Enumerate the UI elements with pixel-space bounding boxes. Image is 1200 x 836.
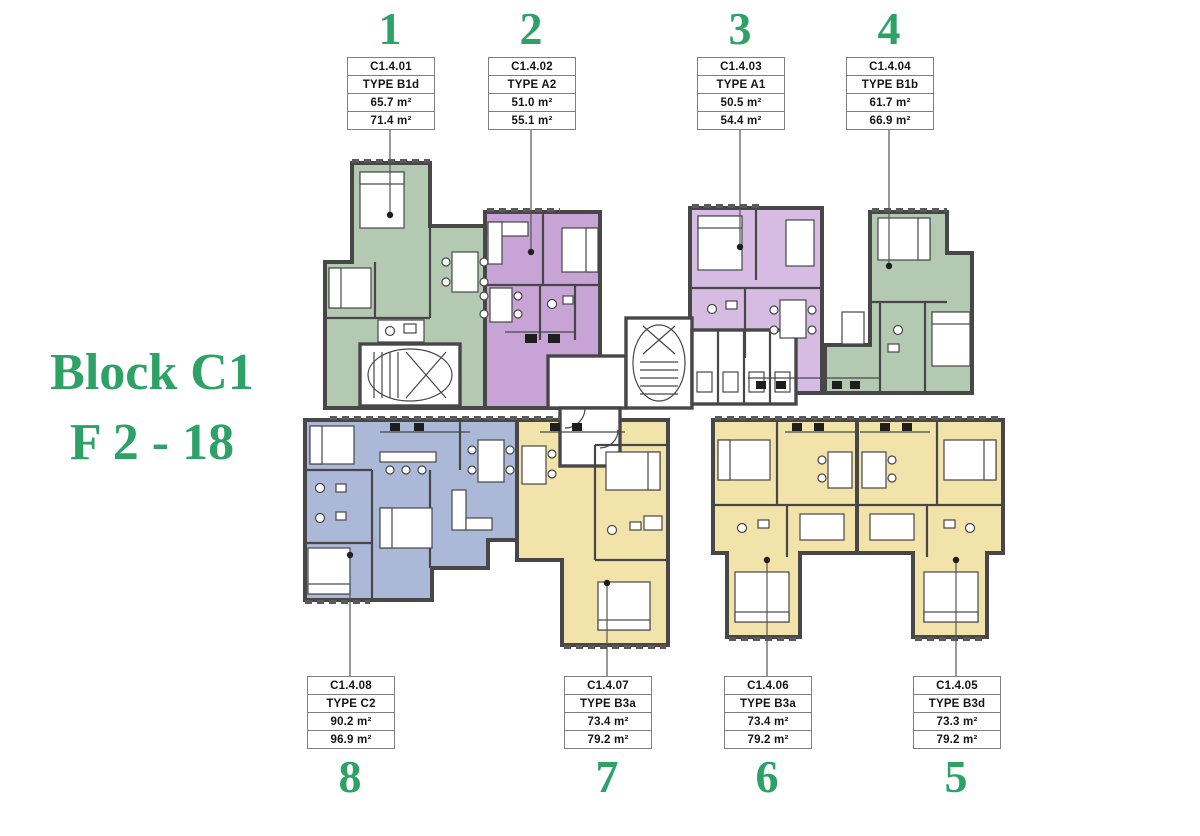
unit-4-info-box: C1.4.04 TYPE B1b 61.7 m² 66.9 m² xyxy=(846,57,934,130)
unit-4-code: C1.4.04 xyxy=(847,58,933,76)
floor-plan-page: Block C1 F 2 - 18 xyxy=(0,0,1200,836)
unit-6-type: TYPE B3a xyxy=(725,695,811,713)
unit-6-number: 6 xyxy=(724,752,810,802)
unit-3-code: C1.4.03 xyxy=(698,58,784,76)
unit-3-area-gross: 54.4 m² xyxy=(698,112,784,129)
unit-6-code: C1.4.06 xyxy=(725,677,811,695)
unit-4-type: TYPE B1b xyxy=(847,76,933,94)
unit-1-code: C1.4.01 xyxy=(348,58,434,76)
lobby xyxy=(548,356,626,408)
unit-5-info-box: C1.4.05 TYPE B3d 73.3 m² 79.2 m² xyxy=(913,676,1001,749)
unit-5-area-gross: 79.2 m² xyxy=(914,731,1000,748)
unit-8-info-box: C1.4.08 TYPE C2 90.2 m² 96.9 m² xyxy=(307,676,395,749)
unit-7-info-box: C1.4.07 TYPE B3a 73.4 m² 79.2 m² xyxy=(564,676,652,749)
unit-1-area-net: 65.7 m² xyxy=(348,94,434,112)
unit-8-area-net: 90.2 m² xyxy=(308,713,394,731)
unit-3-info-box: C1.4.03 TYPE A1 50.5 m² 54.4 m² xyxy=(697,57,785,130)
unit-6-info-box: C1.4.06 TYPE B3a 73.4 m² 79.2 m² xyxy=(724,676,812,749)
unit-2-info-box: C1.4.02 TYPE A2 51.0 m² 55.1 m² xyxy=(488,57,576,130)
unit-1-type: TYPE B1d xyxy=(348,76,434,94)
unit-3-type: TYPE A1 xyxy=(698,76,784,94)
unit-6-area-gross: 79.2 m² xyxy=(725,731,811,748)
unit-5-code: C1.4.05 xyxy=(914,677,1000,695)
unit-3-number: 3 xyxy=(697,4,783,54)
unit-2-type: TYPE A2 xyxy=(489,76,575,94)
unit-6-area-net: 73.4 m² xyxy=(725,713,811,731)
unit-1-number: 1 xyxy=(347,4,433,54)
unit-4-area-gross: 66.9 m² xyxy=(847,112,933,129)
unit-2-number: 2 xyxy=(488,4,574,54)
unit-7-area-net: 73.4 m² xyxy=(565,713,651,731)
unit-8-type: TYPE C2 xyxy=(308,695,394,713)
unit-7-number: 7 xyxy=(564,752,650,802)
unit-5-area-net: 73.3 m² xyxy=(914,713,1000,731)
unit-7-area-gross: 79.2 m² xyxy=(565,731,651,748)
unit-8-number: 8 xyxy=(307,752,393,802)
unit-2-area-gross: 55.1 m² xyxy=(489,112,575,129)
unit-7-code: C1.4.07 xyxy=(565,677,651,695)
unit-8-code: C1.4.08 xyxy=(308,677,394,695)
unit-5-number: 5 xyxy=(913,752,999,802)
unit-5-type: TYPE B3d xyxy=(914,695,1000,713)
unit-4-number: 4 xyxy=(846,4,932,54)
unit-7-type: TYPE B3a xyxy=(565,695,651,713)
unit-2-area-net: 51.0 m² xyxy=(489,94,575,112)
unit-1-info-box: C1.4.01 TYPE B1d 65.7 m² 71.4 m² xyxy=(347,57,435,130)
unit-8-area-gross: 96.9 m² xyxy=(308,731,394,748)
unit-3-area-net: 50.5 m² xyxy=(698,94,784,112)
unit-4-area-net: 61.7 m² xyxy=(847,94,933,112)
unit-1-area-gross: 71.4 m² xyxy=(348,112,434,129)
unit-2-code: C1.4.02 xyxy=(489,58,575,76)
